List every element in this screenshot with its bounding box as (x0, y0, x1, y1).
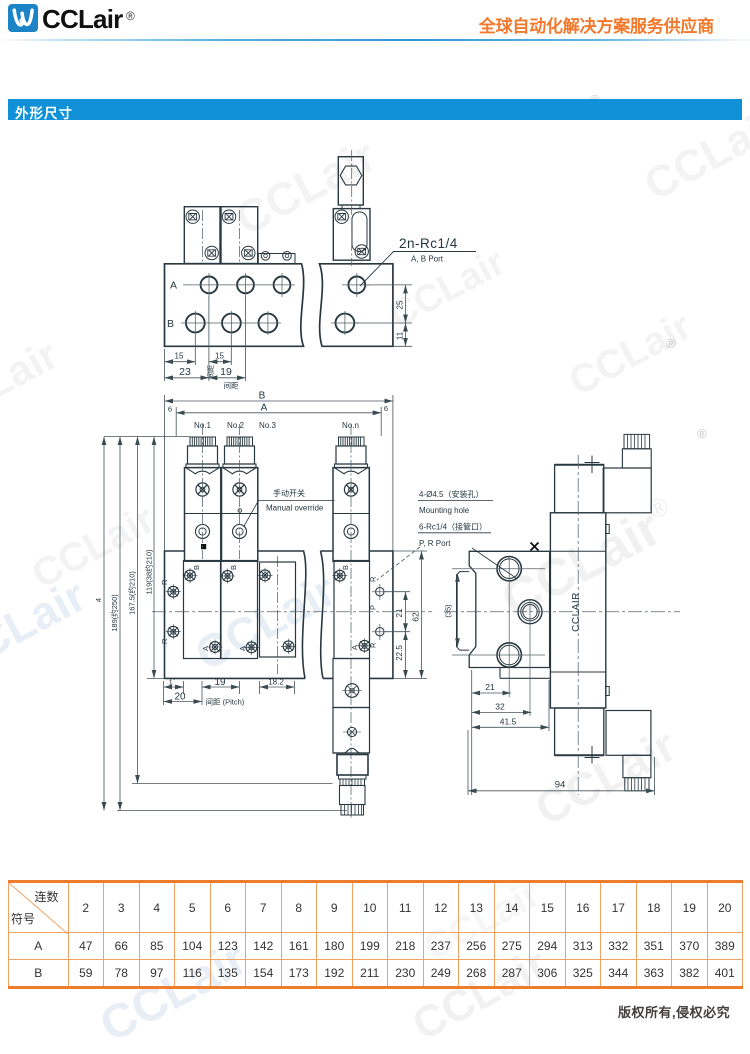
svg-text:间距: 间距 (224, 381, 239, 390)
svg-text:41.5: 41.5 (500, 717, 517, 727)
svg-text:21: 21 (395, 608, 404, 617)
svg-text:R: R (160, 638, 169, 644)
svg-text:B: B (229, 565, 238, 570)
svg-text:15: 15 (215, 352, 224, 361)
svg-text:No.2: No.2 (227, 421, 244, 430)
svg-text:(35): (35) (444, 604, 453, 618)
svg-text:R: R (160, 579, 169, 585)
svg-text:A: A (170, 280, 177, 292)
svg-text:32: 32 (495, 702, 505, 712)
svg-text:4-Ø4.5（安装孔）: 4-Ø4.5（安装孔） (419, 489, 483, 499)
svg-text:A, B Port: A, B Port (411, 255, 444, 264)
svg-text:P, R Port: P, R Port (419, 539, 451, 548)
svg-text:94: 94 (555, 780, 566, 791)
svg-text:CCLAIR: CCLAIR (571, 592, 582, 632)
svg-text:No.3: No.3 (259, 421, 276, 430)
svg-text:A: A (261, 403, 268, 414)
svg-text:4: 4 (94, 598, 103, 602)
svg-text:25: 25 (396, 300, 405, 309)
svg-text:手动开关: 手动开关 (273, 488, 305, 498)
svg-text:R: R (369, 642, 378, 648)
svg-text:23: 23 (179, 366, 191, 378)
svg-text:B: B (167, 318, 174, 330)
svg-text:6: 6 (384, 404, 388, 413)
svg-text:No.n: No.n (342, 421, 359, 430)
svg-text:Manual override: Manual override (266, 504, 324, 513)
svg-text:A: A (350, 645, 359, 650)
svg-text:B: B (192, 565, 201, 570)
svg-text:15: 15 (175, 352, 184, 361)
svg-text:1`: 1` (169, 678, 176, 687)
svg-text:6-Rc1/4（接管口）: 6-Rc1/4（接管口） (419, 522, 487, 532)
svg-text:62: 62 (411, 612, 421, 622)
svg-text:间距 (Pitch): 间距 (Pitch) (206, 698, 245, 707)
svg-text:119(38约210): 119(38约210) (144, 549, 154, 595)
svg-text:19: 19 (220, 366, 232, 378)
svg-text:20: 20 (174, 692, 186, 703)
svg-text:B: B (259, 391, 266, 402)
svg-text:167.5(约210): 167.5(约210) (127, 571, 137, 615)
svg-text:间距: 间距 (207, 365, 215, 379)
svg-text:A: A (238, 646, 247, 651)
svg-text:B: B (341, 565, 350, 570)
svg-text:21: 21 (485, 682, 495, 692)
svg-text:2n-Rc1/4: 2n-Rc1/4 (399, 236, 458, 251)
svg-text:6: 6 (168, 405, 172, 414)
svg-text:189(约250): 189(约250) (109, 594, 119, 632)
svg-text:11: 11 (396, 331, 405, 340)
svg-text:Mounting hole: Mounting hole (419, 506, 470, 515)
svg-text:19: 19 (214, 677, 226, 688)
svg-text:P: P (369, 605, 378, 610)
svg-text:A: A (201, 646, 210, 651)
svg-text:22.5: 22.5 (395, 645, 404, 661)
svg-text:R: R (369, 576, 378, 582)
svg-text:18.2: 18.2 (268, 678, 284, 687)
